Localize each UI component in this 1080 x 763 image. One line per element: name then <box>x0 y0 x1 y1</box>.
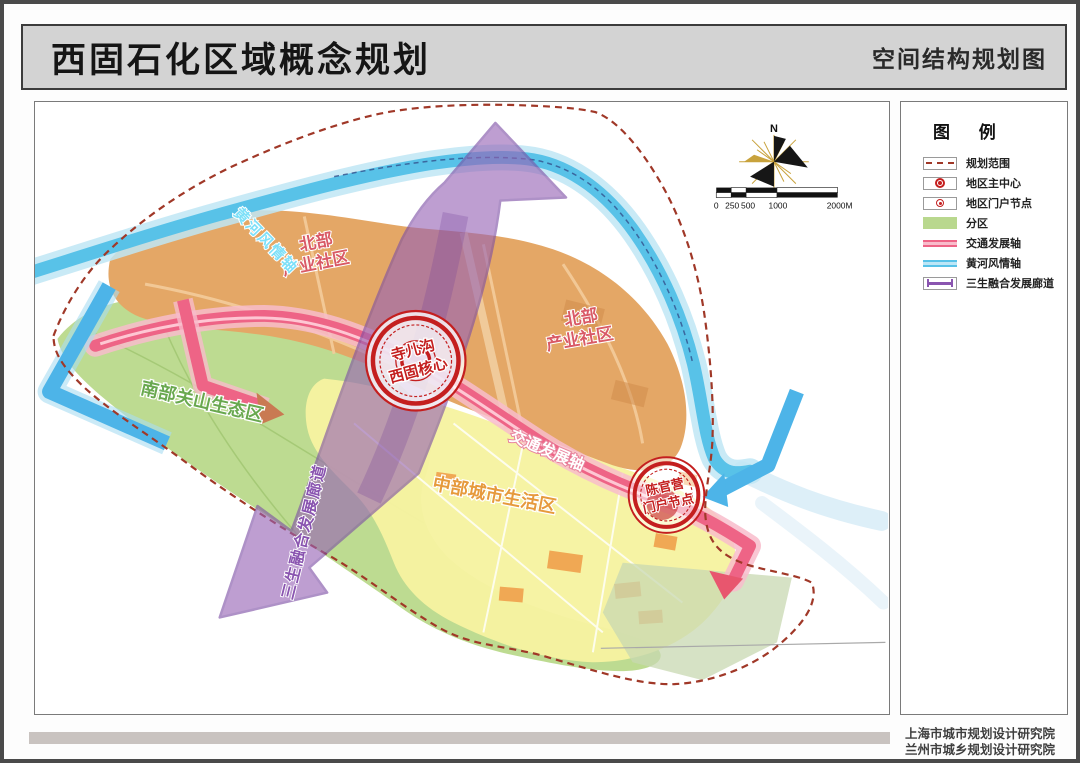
legend-panel: 图 例 规划范围 地区主中心 地区门户节点 分区 交通发展轴 黄河风情轴 三生融… <box>900 101 1068 715</box>
map-frame: 寺儿沟 西固核心 陈官营 门户节点 北部 产业社区 <box>34 101 890 715</box>
main-center-swatch-icon <box>935 178 945 188</box>
scale-tick-250: 250 <box>725 200 739 210</box>
title-bar: 西固石化区域概念规划 空间结构规划图 <box>21 24 1067 90</box>
planning-map: 寺儿沟 西固核心 陈官营 门户节点 北部 产业社区 <box>35 102 888 713</box>
dashed-boundary-swatch <box>926 162 954 164</box>
legend-label: 分区 <box>966 215 988 231</box>
main-center-node: 寺儿沟 西固核心 <box>366 311 466 411</box>
page-subtitle: 空间结构规划图 <box>872 40 1047 74</box>
legend-label: 地区门户节点 <box>966 195 1032 211</box>
footer-bar <box>29 732 890 744</box>
legend-title: 图 例 <box>933 118 1067 143</box>
design-institutes: 上海市城市规划设计研究院 兰州市城乡规划设计研究院 <box>905 726 1075 758</box>
institute-line1: 上海市城市规划设计研究院 <box>905 726 1075 742</box>
legend-label: 地区主中心 <box>966 175 1021 191</box>
compass-north-label: N <box>770 123 778 135</box>
scale-tick-500: 500 <box>741 200 755 210</box>
legend-item-planning-boundary: 规划范围 <box>923 153 1067 173</box>
legend-item-gateway-node: 地区门户节点 <box>923 193 1067 213</box>
traffic-axis-swatch <box>923 240 957 247</box>
legend-label: 三生融合发展廊道 <box>966 275 1054 291</box>
scale-tick-1000: 1000 <box>769 200 788 210</box>
river-continuation-band <box>742 471 881 521</box>
scale-tick-0: 0 <box>714 200 719 210</box>
gateway-swatch-icon <box>936 199 944 207</box>
institute-line2: 兰州市城乡规划设计研究院 <box>905 742 1075 758</box>
corridor-swatch <box>927 279 953 287</box>
legend-item-traffic-axis: 交通发展轴 <box>923 233 1067 253</box>
legend-label: 规划范围 <box>966 155 1010 171</box>
compass-rose: N <box>739 123 809 189</box>
scale-bar: 0 250 500 1000 2000M <box>714 188 853 211</box>
legend-label: 交通发展轴 <box>966 235 1021 251</box>
scale-tick-2000m: 2000M <box>827 200 853 210</box>
legend-item-main-center: 地区主中心 <box>923 173 1067 193</box>
legend-item-river-axis: 黄河风情轴 <box>923 253 1067 273</box>
legend-item-corridor: 三生融合发展廊道 <box>923 273 1067 293</box>
river-axis-swatch <box>923 260 957 267</box>
legend-label: 黄河风情轴 <box>966 255 1021 271</box>
page-title: 西固石化区域概念规划 <box>51 32 431 83</box>
planning-sheet: 西固石化区域概念规划 空间结构规划图 <box>0 0 1080 763</box>
gateway-node: 陈官营 门户节点 <box>629 457 705 533</box>
legend-item-district: 分区 <box>923 213 1067 233</box>
district-swatch <box>923 217 957 229</box>
